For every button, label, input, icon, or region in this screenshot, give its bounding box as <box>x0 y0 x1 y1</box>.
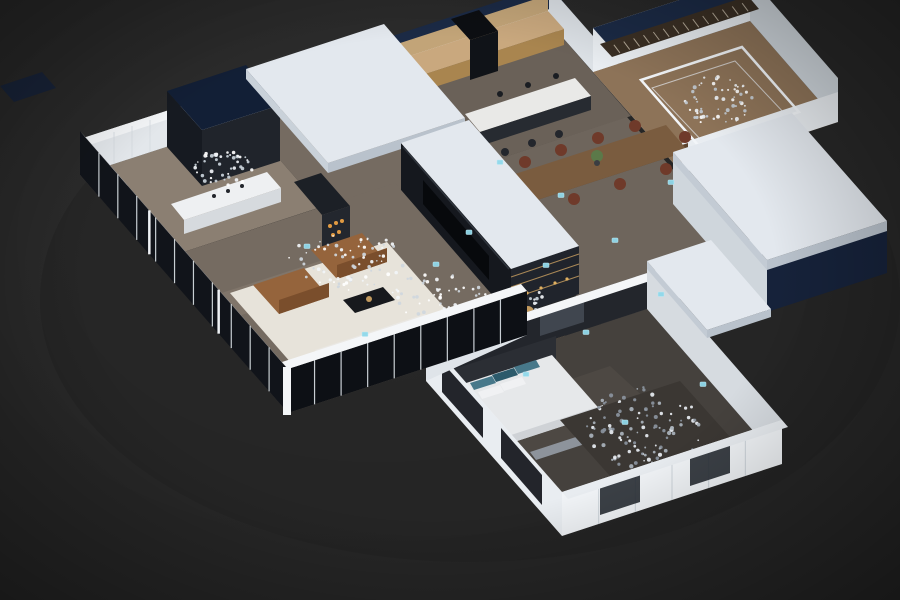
foyer-chandelier-crystal <box>250 168 253 171</box>
butterfly-chandelier-crystal <box>367 238 369 240</box>
butterfly-chandelier-crystal <box>329 278 332 281</box>
master-chandelier-crystal <box>593 428 595 430</box>
closet-chandelier-crystal <box>699 84 701 86</box>
coffee-table-gold-decor <box>366 296 372 302</box>
closet-chandelier-crystal <box>717 108 719 110</box>
master-chandelier-crystal <box>656 456 659 459</box>
closet-chandelier-crystal <box>731 104 735 108</box>
breakfast-chandelier-crystal <box>535 297 539 301</box>
master-chandelier-crystal <box>601 399 604 402</box>
butterfly-chandelier-crystal <box>364 275 367 278</box>
foyer-chandelier-crystal <box>218 162 221 165</box>
butterfly-chandelier-crystal <box>323 247 326 250</box>
closet-chandelier-crystal <box>721 89 723 91</box>
ceiling-marker <box>466 230 472 235</box>
butterfly-chandelier-crystal <box>382 254 385 257</box>
butterfly-chandelier-crystal <box>345 281 348 284</box>
ceiling-marker <box>658 292 664 297</box>
butterfly-chandelier-crystal <box>319 241 321 243</box>
butterfly-chandelier-crystal <box>358 245 360 247</box>
butterfly-chandelier-crystal <box>370 270 372 272</box>
foyer-chandelier-crystal <box>226 155 229 158</box>
butterfly-chandelier-crystal <box>376 260 378 262</box>
butterfly-chandelier-crystal <box>362 256 365 259</box>
master-chandelier-crystal <box>637 432 639 434</box>
butterfly-chandelier-crystal <box>332 235 334 237</box>
master-chandelier-crystal <box>593 421 596 424</box>
butterfly-chandelier-crystal <box>351 277 353 279</box>
master-chandelier-crystal <box>633 441 636 444</box>
master-chandelier-crystal <box>628 439 631 442</box>
closet-chandelier-crystal <box>726 108 730 112</box>
dining-chair <box>629 120 641 132</box>
butterfly-chandelier-crystal <box>448 290 450 292</box>
master-chandelier-crystal <box>609 430 613 434</box>
butterfly-chandelier-crystal <box>352 264 355 267</box>
butterfly-chandelier-crystal <box>378 242 381 245</box>
dining-chair <box>555 144 567 156</box>
ceiling-marker <box>543 263 549 268</box>
master-chandelier-crystal <box>670 413 672 415</box>
butterfly-chandelier-crystal <box>472 288 475 291</box>
master-chandelier-crystal <box>624 441 627 444</box>
butterfly-chandelier-crystal <box>341 255 344 258</box>
butterfly-chandelier-crystal <box>381 260 382 261</box>
floorplan-render <box>0 0 900 600</box>
master-chandelier-crystal <box>603 416 606 419</box>
breakfast-chandelier-crystal <box>529 297 532 300</box>
master-chandelier-crystal <box>616 413 620 417</box>
shelf-lit-book <box>328 224 332 228</box>
butterfly-chandelier-crystal <box>333 281 335 283</box>
ceiling-marker <box>583 330 589 335</box>
closet-chandelier-crystal <box>731 118 733 120</box>
butterfly-chandelier-crystal <box>338 285 340 287</box>
closet-chandelier-crystal <box>725 121 727 123</box>
master-chandelier-crystal <box>666 437 669 440</box>
master-chandelier-crystal <box>667 431 671 435</box>
closet-chandelier-crystal <box>716 115 720 119</box>
master-chandelier-crystal <box>669 419 671 421</box>
dining-chair <box>679 131 691 143</box>
butterfly-chandelier-crystal <box>334 253 337 256</box>
master-chandelier-crystal <box>629 464 633 468</box>
butterfly-chandelier-crystal <box>379 269 382 272</box>
butterfly-chandelier-crystal <box>455 288 458 291</box>
butterfly-chandelier-crystal <box>392 292 394 294</box>
butterfly-chandelier-crystal <box>436 288 439 291</box>
master-chandelier-crystal <box>664 449 668 453</box>
ceiling-marker <box>612 238 618 243</box>
master-chandelier-crystal <box>647 458 651 462</box>
master-chandelier-crystal <box>660 412 663 415</box>
butterfly-chandelier-crystal <box>362 253 366 257</box>
master-chandelier-crystal <box>658 453 662 457</box>
master-chandelier-crystal <box>601 443 605 447</box>
closet-chandelier-crystal <box>729 79 731 81</box>
foyer-chandelier-crystal <box>210 181 212 183</box>
closet-chandelier-crystal <box>744 114 746 116</box>
butterfly-chandelier-crystal <box>397 290 400 293</box>
master-chandelier-crystal <box>617 457 619 459</box>
closet-chandelier-crystal <box>727 89 729 91</box>
master-chandelier-crystal <box>643 460 645 462</box>
master-chandelier-crystal <box>653 451 656 454</box>
foyer-chandelier-crystal <box>226 151 229 154</box>
master-chandelier-crystal <box>641 421 644 424</box>
butterfly-chandelier-crystal <box>385 239 388 242</box>
butterfly-chandelier-crystal <box>359 238 362 241</box>
butterfly-chandelier-crystal <box>306 252 308 254</box>
master-chandelier-crystal <box>687 416 690 419</box>
dining-chair <box>660 163 672 175</box>
master-chandelier-crystal <box>611 459 613 461</box>
master-chandelier-crystal <box>622 396 626 400</box>
master-chandelier-crystal <box>652 405 654 407</box>
butterfly-chandelier-crystal <box>358 263 360 265</box>
master-chandelier-crystal <box>693 419 696 422</box>
foyer-chandelier-crystal <box>226 183 229 186</box>
master-chandelier-crystal <box>590 417 592 419</box>
foyer-chandelier-crystal <box>233 166 236 169</box>
foyer-chandelier-crystal <box>223 179 225 181</box>
ceiling-marker <box>523 372 529 377</box>
closet-chandelier-crystal <box>739 93 742 96</box>
closet-chandelier-crystal <box>712 82 715 85</box>
closet-chandelier-crystal <box>693 85 697 89</box>
master-chandelier-crystal <box>601 429 605 433</box>
master-chandelier-crystal <box>654 415 658 419</box>
butterfly-chandelier-crystal <box>350 250 352 252</box>
ceiling-marker <box>668 180 674 185</box>
foyer-chandelier-crystal <box>203 179 207 183</box>
foyer-chandelier-crystal <box>229 154 231 156</box>
butterfly-chandelier-crystal <box>462 287 465 290</box>
master-chandelier-crystal <box>642 388 645 391</box>
closet-chandelier-crystal <box>700 82 702 84</box>
foyer-chandelier-crystal <box>203 160 206 163</box>
pendant-lamp <box>553 73 559 79</box>
butterfly-chandelier-crystal <box>370 260 373 263</box>
dining-chair <box>519 156 531 168</box>
butterfly-chandelier-crystal <box>360 241 361 242</box>
closet-chandelier-crystal <box>693 96 696 99</box>
neighbor-roof-fragment <box>0 72 56 102</box>
butterfly-chandelier-crystal <box>386 272 390 276</box>
closet-chandelier-crystal <box>743 109 746 112</box>
master-chandelier-crystal <box>634 461 638 465</box>
console-decor <box>226 189 230 193</box>
butterfly-chandelier-crystal <box>477 286 480 289</box>
closet-chandelier-crystal <box>739 101 742 104</box>
butterfly-chandelier-crystal <box>422 282 425 285</box>
master-chandelier-crystal <box>642 386 644 388</box>
foyer-chandelier-crystal <box>215 180 218 183</box>
foyer-chandelier-crystal <box>201 174 204 177</box>
master-chandelier-crystal <box>627 436 629 438</box>
butterfly-chandelier-crystal <box>401 264 405 268</box>
facade-corner-post <box>283 367 291 415</box>
closet-chandelier-crystal <box>700 108 702 110</box>
butterfly-chandelier-crystal <box>435 278 439 282</box>
closet-chandelier-crystal <box>724 112 726 114</box>
closet-chandelier-crystal <box>715 77 717 79</box>
closet-chandelier-crystal <box>702 115 706 119</box>
butterfly-chandelier-crystal <box>417 312 421 316</box>
master-chandelier-crystal <box>638 412 641 415</box>
foyer-chandelier-crystal <box>227 175 230 178</box>
foyer-chandelier-crystal <box>203 154 207 158</box>
butterfly-chandelier-crystal <box>314 249 316 251</box>
ceiling-marker <box>304 244 310 249</box>
butterfly-chandelier-crystal <box>379 255 381 257</box>
master-chandelier-crystal <box>629 427 632 430</box>
breakfast-chandelier-crystal <box>538 291 541 294</box>
master-chandelier-crystal <box>646 414 648 416</box>
master-chandelier-crystal <box>671 426 674 429</box>
butterfly-chandelier-crystal <box>478 293 480 295</box>
closet-chandelier-crystal <box>733 96 735 98</box>
butterfly-chandelier-crystal <box>422 310 426 314</box>
master-chandelier-crystal <box>697 423 701 427</box>
closet-chandelier-crystal <box>750 96 753 99</box>
butterfly-chandelier-crystal <box>423 273 426 276</box>
butterfly-chandelier-crystal <box>317 245 320 248</box>
butterfly-chandelier-crystal <box>400 292 403 295</box>
master-chandelier-crystal <box>629 407 633 411</box>
butterfly-chandelier-crystal <box>366 284 368 286</box>
butterfly-chandelier-crystal <box>288 257 290 259</box>
foyer-chandelier-crystal <box>197 161 199 163</box>
wine-bottle <box>565 277 568 280</box>
closet-chandelier-crystal <box>706 115 709 118</box>
master-chandelier-crystal <box>589 434 593 438</box>
ceiling-marker <box>558 193 564 198</box>
foyer-chandelier-crystal <box>210 154 214 158</box>
closet-chandelier-crystal <box>715 96 719 100</box>
master-chandelier-crystal <box>658 401 661 404</box>
butterfly-chandelier-crystal <box>336 277 339 280</box>
butterfly-chandelier-crystal <box>335 244 339 248</box>
isometric-apartment-scene <box>0 0 900 600</box>
console-decor <box>212 194 216 198</box>
butterfly-chandelier-crystal <box>344 254 347 257</box>
butterfly-chandelier-crystal <box>297 244 301 248</box>
closet-chandelier-crystal <box>713 118 716 121</box>
butterfly-chandelier-crystal <box>383 243 385 245</box>
foyer-chandelier-crystal <box>239 156 242 159</box>
butterfly-chandelier-crystal <box>405 311 407 313</box>
ceiling-marker <box>700 382 706 387</box>
master-chandelier-crystal <box>603 402 606 405</box>
butterfly-chandelier-crystal <box>346 276 350 280</box>
bar-stool <box>555 130 563 138</box>
closet-chandelier-crystal <box>735 117 739 121</box>
butterfly-chandelier-crystal <box>406 278 408 280</box>
foyer-chandelier-crystal <box>210 177 212 179</box>
ceiling-marker <box>497 160 503 165</box>
master-chandelier-crystal <box>672 432 676 436</box>
master-chandelier-crystal <box>618 410 622 414</box>
butterfly-chandelier-crystal <box>373 284 375 286</box>
foyer-chandelier-crystal <box>237 155 239 157</box>
butterfly-chandelier-crystal <box>362 280 364 282</box>
foyer-chandelier-crystal <box>215 158 218 161</box>
butterfly-chandelier-crystal <box>398 301 402 305</box>
butterfly-chandelier-crystal <box>327 244 330 247</box>
bar-stool <box>528 139 536 147</box>
dining-chair <box>568 193 580 205</box>
table-plant-pot <box>594 160 600 166</box>
shelf-lit-book <box>340 219 344 223</box>
closet-chandelier-crystal <box>685 101 688 104</box>
butterfly-chandelier-crystal <box>391 242 394 245</box>
butterfly-chandelier-crystal <box>367 265 371 269</box>
butterfly-chandelier-crystal <box>426 280 430 284</box>
master-chandelier-crystal <box>659 447 661 449</box>
closet-chandelier-crystal <box>695 98 697 100</box>
butterfly-chandelier-crystal <box>317 267 321 271</box>
master-chandelier-crystal <box>644 454 647 457</box>
foyer-chandelier-crystal <box>193 166 197 170</box>
foyer-chandelier-crystal <box>227 173 229 175</box>
closet-chandelier-crystal <box>734 84 737 87</box>
breakfast-chandelier-crystal <box>540 295 544 299</box>
butterfly-chandelier-crystal <box>299 257 303 261</box>
master-chandelier-crystal <box>613 456 617 460</box>
master-chandelier-crystal <box>690 406 693 409</box>
closet-chandelier-crystal <box>695 109 699 113</box>
master-chandelier-crystal <box>641 452 644 455</box>
foyer-chandelier-crystal <box>219 155 222 158</box>
pendant-lamp <box>525 82 531 88</box>
master-chandelier-crystal <box>617 463 620 466</box>
closet-chandelier-crystal <box>695 116 698 119</box>
closet-chandelier-crystal <box>731 98 734 101</box>
butterfly-chandelier-crystal <box>419 303 421 305</box>
foyer-chandelier-crystal <box>232 156 236 160</box>
foyer-chandelier-crystal <box>196 171 198 173</box>
master-chandelier-crystal <box>645 434 648 437</box>
closet-chandelier-crystal <box>689 109 691 111</box>
foyer-chandelier-crystal <box>247 160 250 163</box>
butterfly-chandelier-crystal <box>439 302 441 304</box>
master-chandelier-crystal <box>637 417 639 419</box>
master-chandelier-crystal <box>636 449 639 452</box>
breakfast-chandelier-crystal <box>533 298 535 300</box>
master-chandelier-crystal <box>597 406 600 409</box>
master-chandelier-crystal <box>633 445 636 448</box>
closet-chandelier-crystal <box>735 105 737 107</box>
butterfly-chandelier-crystal <box>319 281 321 283</box>
closet-chandelier-crystal <box>699 110 703 114</box>
dining-chair <box>614 178 626 190</box>
master-chandelier-crystal <box>609 393 613 397</box>
butterfly-chandelier-crystal <box>433 294 435 296</box>
master-chandelier-crystal <box>618 401 620 403</box>
closet-chandelier-crystal <box>744 105 746 107</box>
butterfly-chandelier-crystal <box>475 294 478 297</box>
foyer-chandelier-crystal <box>194 164 196 166</box>
master-chandelier-crystal <box>659 427 661 429</box>
butterfly-chandelier-crystal <box>412 296 415 299</box>
master-chandelier-crystal <box>641 426 645 430</box>
master-chandelier-crystal <box>684 406 687 409</box>
master-chandelier-crystal <box>650 393 654 397</box>
butterfly-chandelier-crystal <box>394 271 398 275</box>
butterfly-chandelier-crystal <box>381 247 383 249</box>
master-chandelier-crystal <box>680 420 682 422</box>
butterfly-chandelier-crystal <box>305 276 308 279</box>
master-chandelier-crystal <box>655 445 657 447</box>
closet-chandelier-crystal <box>733 88 735 90</box>
wine-bottle <box>553 281 556 284</box>
butterfly-chandelier-crystal <box>439 295 442 298</box>
butterfly-chandelier-crystal <box>396 296 400 300</box>
foyer-chandelier-crystal <box>235 178 239 182</box>
butterfly-chandelier-crystal <box>338 282 341 285</box>
foyer-chandelier-crystal <box>241 167 245 171</box>
dining-chair <box>592 132 604 144</box>
master-chandelier-crystal <box>654 424 658 428</box>
butterfly-chandelier-crystal <box>458 290 461 293</box>
closet-chandelier-crystal <box>745 91 748 94</box>
ceiling-marker <box>433 262 439 267</box>
master-chandelier-crystal <box>644 447 646 449</box>
shelf-lit-book <box>334 221 338 225</box>
closet-chandelier-crystal <box>703 76 705 78</box>
butterfly-chandelier-crystal <box>352 256 355 259</box>
closet-chandelier-crystal <box>700 121 702 123</box>
butterfly-chandelier-crystal <box>428 299 430 301</box>
master-chandelier-crystal <box>651 401 654 404</box>
foyer-chandelier-crystal <box>214 153 218 157</box>
master-chandelier-crystal <box>679 423 682 426</box>
master-chandelier-crystal <box>644 407 648 411</box>
butterfly-chandelier-crystal <box>340 248 343 251</box>
butterfly-chandelier-crystal <box>348 289 350 291</box>
butterfly-chandelier-crystal <box>451 274 453 276</box>
master-chandelier-crystal <box>620 432 624 436</box>
foyer-chandelier-crystal <box>241 180 245 184</box>
master-chandelier-crystal <box>628 450 631 453</box>
butterfly-chandelier-crystal <box>415 295 419 299</box>
ceiling-marker <box>362 332 368 337</box>
butterfly-chandelier-crystal <box>322 270 325 273</box>
butterfly-chandelier-crystal <box>313 267 315 269</box>
butterfly-chandelier-crystal <box>409 277 412 280</box>
pendant-lamp <box>497 91 503 97</box>
foyer-chandelier-crystal <box>232 151 236 155</box>
master-chandelier-crystal <box>618 436 621 439</box>
master-chandelier-crystal <box>679 405 681 407</box>
master-chandelier-crystal <box>662 429 665 432</box>
butterfly-chandelier-crystal <box>371 247 374 250</box>
closet-chandelier-crystal <box>737 86 739 88</box>
console-decor <box>240 184 244 188</box>
master-chandelier-crystal <box>608 424 612 428</box>
master-chandelier-crystal <box>592 444 596 448</box>
master-chandelier-crystal <box>633 398 636 401</box>
butterfly-chandelier-crystal <box>439 293 442 296</box>
foyer-chandelier-crystal <box>244 156 246 158</box>
butterfly-chandelier-crystal <box>363 246 366 249</box>
bar-stool <box>501 148 509 156</box>
butterfly-chandelier-crystal <box>484 293 487 296</box>
closet-chandelier-crystal <box>696 101 698 103</box>
master-chandelier-crystal <box>697 439 699 441</box>
breakfast-chandelier-crystal <box>533 302 536 305</box>
